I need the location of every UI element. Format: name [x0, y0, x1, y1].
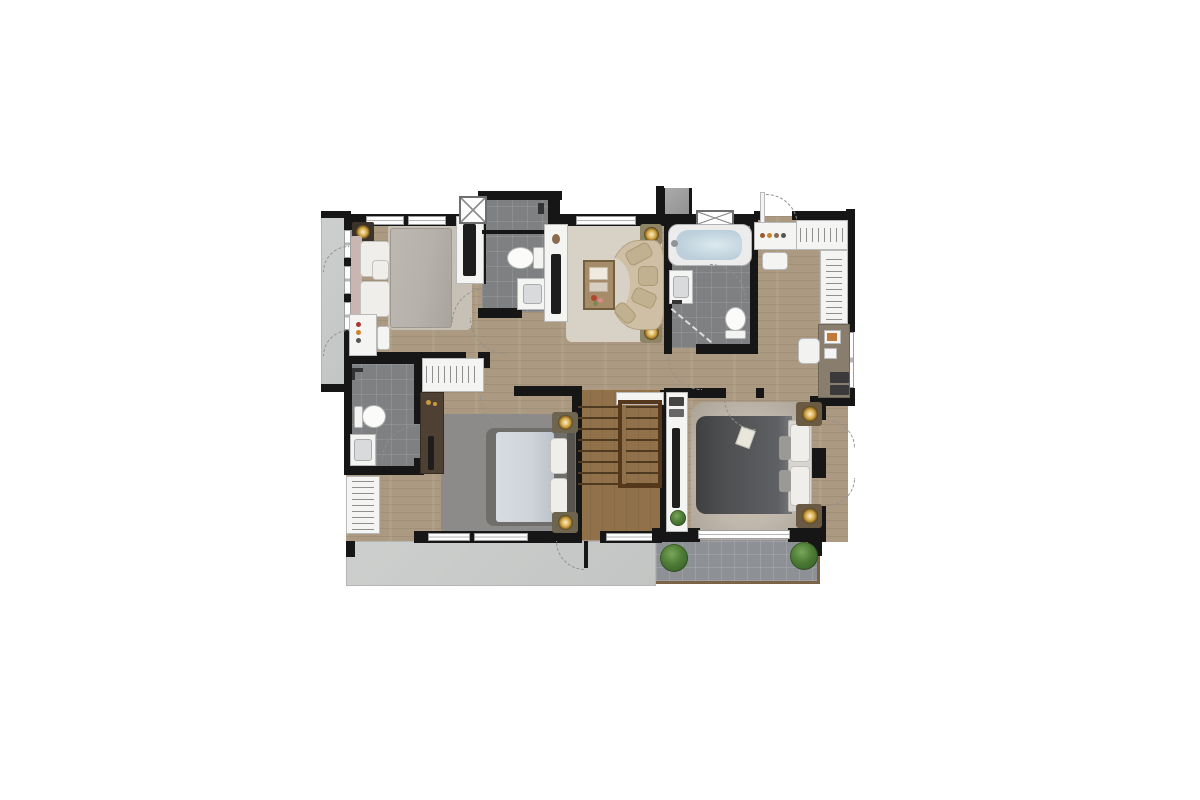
- bedroom2-duvet: [496, 432, 554, 522]
- tv-icon: [463, 224, 476, 276]
- window: [408, 216, 446, 225]
- closet-stool: [762, 252, 788, 270]
- master-pillow: [790, 424, 810, 462]
- media-item: [669, 409, 684, 417]
- plant-icon: [790, 542, 818, 570]
- shower-head-icon: [672, 300, 682, 304]
- toilet-bowl: [725, 307, 746, 331]
- cabinet-decor: [433, 402, 437, 406]
- master-pillow: [790, 466, 810, 506]
- wall: [756, 388, 764, 398]
- desk-item: [356, 322, 361, 327]
- sink-icon: [673, 276, 689, 298]
- accent-pillow: [779, 436, 791, 460]
- wall: [656, 186, 664, 220]
- accent-pillow: [779, 470, 791, 492]
- casement-window-icon: [459, 196, 487, 224]
- closet-door-leaf: [760, 192, 765, 224]
- tv-icon: [672, 428, 680, 508]
- window-swing-arc: [827, 420, 855, 448]
- wall: [344, 214, 352, 230]
- stair-treads-left-flight: [578, 406, 620, 488]
- toilet-tank: [533, 247, 544, 269]
- window: [698, 530, 790, 539]
- wall: [812, 448, 826, 478]
- cosmetic-item: [774, 233, 779, 238]
- bathtub-faucet-icon: [671, 240, 678, 247]
- desk-item: [356, 338, 361, 343]
- picture-frame: [824, 348, 837, 359]
- desk-chair: [798, 338, 820, 364]
- wall: [696, 344, 758, 354]
- plant-icon: [660, 544, 688, 572]
- cosmetic-item: [781, 233, 786, 238]
- bedroom1-pillow: [360, 281, 390, 317]
- cosmetic-item: [760, 233, 765, 238]
- toilet-bowl: [507, 247, 534, 269]
- toilet-tank: [725, 330, 746, 339]
- shower-partition: [482, 230, 546, 234]
- window: [428, 533, 470, 541]
- flower-decor: [593, 301, 598, 306]
- sink-icon: [354, 439, 372, 461]
- media-item: [669, 397, 684, 406]
- bedroom2-lamp-icon: [558, 415, 573, 430]
- decor-item: [552, 234, 560, 244]
- drawer-unit: [830, 372, 849, 383]
- stair-railing: [618, 400, 662, 488]
- bedroom2-lamp-icon: [558, 515, 573, 530]
- sink-icon: [523, 284, 542, 304]
- coffee-table-books: [589, 282, 608, 292]
- bedroom2-pillow: [550, 438, 568, 474]
- terrace-floor: [346, 541, 656, 586]
- wardrobe-hanging-rail: [826, 254, 842, 320]
- master-lamp-icon: [802, 406, 818, 422]
- wall: [792, 211, 854, 220]
- master-lamp-icon: [802, 508, 818, 524]
- cosmetic-item: [767, 233, 772, 238]
- picture-frame-art: [827, 333, 837, 341]
- toilet-bowl: [362, 405, 386, 428]
- cabinet-decor: [426, 400, 431, 405]
- wall: [344, 466, 424, 475]
- bathtub-water: [676, 230, 742, 260]
- bedroom2-pillow: [550, 478, 568, 514]
- floor-plan-canvas: [0, 0, 1200, 800]
- coffee-table-books: [589, 267, 608, 280]
- wardrobe-hanging-rail: [426, 366, 480, 383]
- window-swing-arc: [827, 478, 855, 506]
- desk-item: [356, 330, 361, 335]
- bedroom2-headboard: [567, 432, 575, 522]
- wall: [514, 386, 580, 396]
- wardrobe-hanging-rail: [800, 228, 844, 242]
- bedroom1-stool: [377, 326, 390, 350]
- plant-icon: [670, 510, 686, 526]
- drawer-unit: [830, 385, 849, 395]
- sofa-cushion: [638, 266, 658, 286]
- shower-head-icon: [538, 203, 544, 214]
- bedroom1-duvet: [390, 228, 452, 328]
- bedroom1-pillow: [372, 260, 389, 280]
- wardrobe-hanging-rail: [352, 480, 374, 530]
- window: [606, 533, 656, 541]
- shower-arm-icon: [352, 372, 355, 380]
- wall: [346, 541, 355, 557]
- tv-icon: [428, 436, 434, 470]
- window: [474, 533, 528, 541]
- flower-decor: [598, 298, 603, 303]
- tv-icon: [551, 254, 561, 314]
- bedroom1-desk: [349, 314, 377, 356]
- window: [576, 216, 636, 225]
